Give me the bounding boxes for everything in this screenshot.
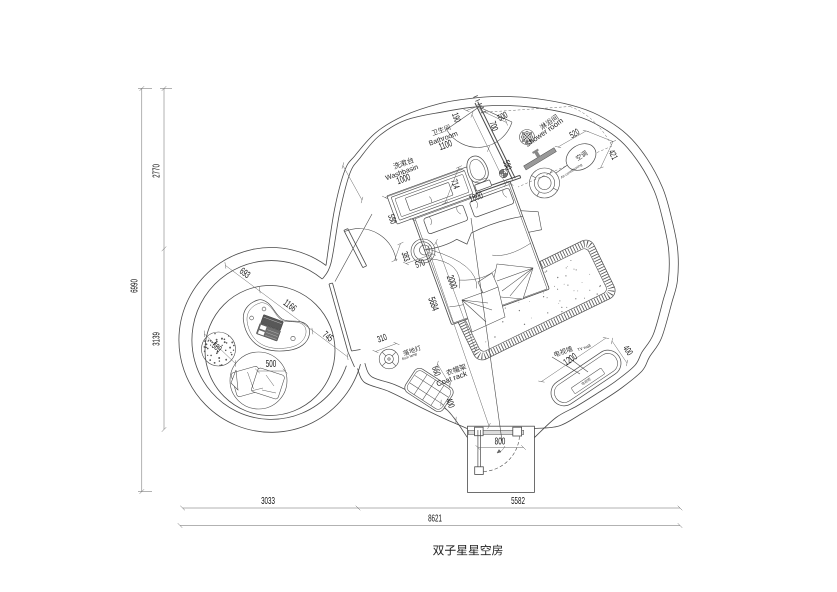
svg-text:2770: 2770: [151, 164, 162, 178]
svg-text:5582: 5582: [511, 496, 525, 507]
svg-text:6990: 6990: [129, 279, 140, 293]
svg-text:3033: 3033: [261, 496, 275, 507]
svg-text:8621: 8621: [428, 513, 442, 524]
svg-text:500: 500: [266, 359, 277, 370]
svg-text:3139: 3139: [151, 332, 162, 346]
svg-text:800: 800: [495, 435, 506, 447]
